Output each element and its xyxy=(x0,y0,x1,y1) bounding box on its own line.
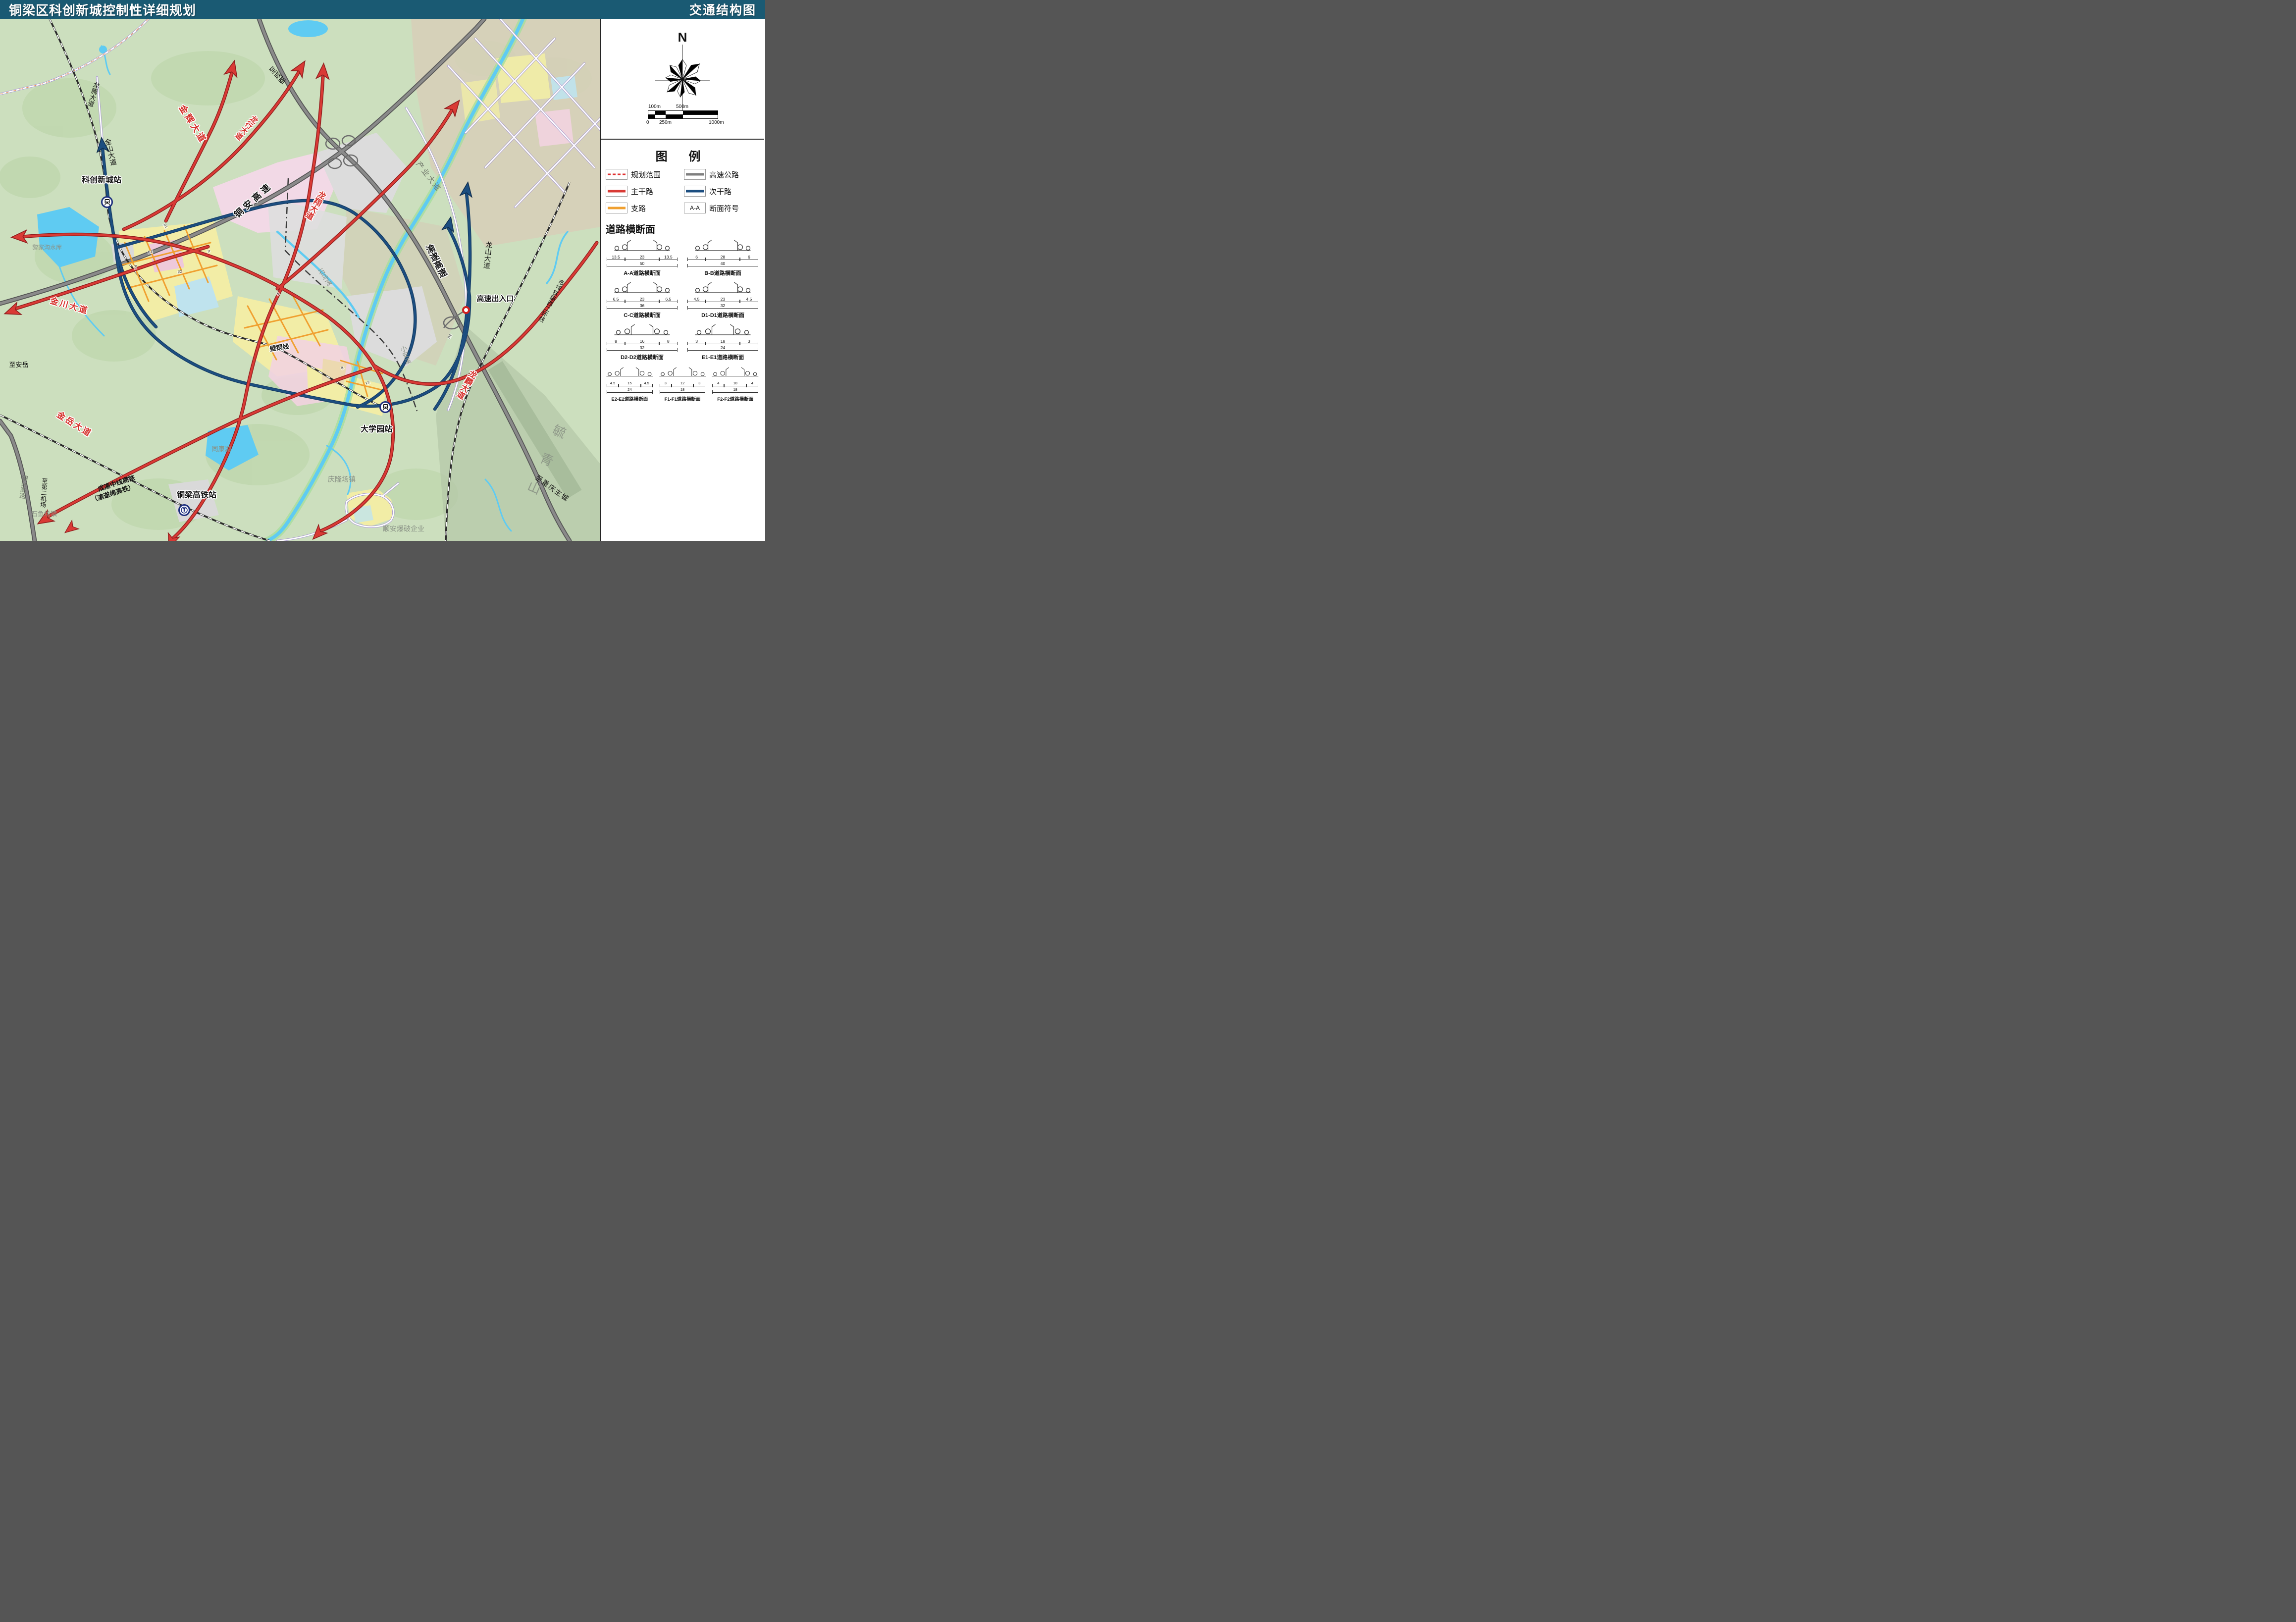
legend-item-expressway: 高速公路 xyxy=(684,169,759,180)
cross-section-sketch xyxy=(685,322,760,339)
drawing-title: 交通结构图 xyxy=(689,0,756,18)
cross-section-sketch xyxy=(710,364,760,381)
cross-section-sketch xyxy=(658,364,708,381)
arterial-road-swatch xyxy=(606,186,627,197)
legend-item-section-symbol: A-A 断面符号 xyxy=(684,203,759,213)
cross-section-f2-f2: 4 10 4 18 F2-F2道路横断面 xyxy=(710,363,760,403)
cross-section-a-a: 13.5 23 13.5 50 A-A道路横断面 xyxy=(605,237,679,278)
scale-label-100m: 100m xyxy=(648,104,661,109)
map-drawing xyxy=(0,19,601,541)
legend-item-planning-boundary: 规划范围 xyxy=(606,169,681,180)
cross-section-f1-f1: 3 12 3 18 F1-F1道路横断面 xyxy=(658,363,708,403)
title-bar: 铜梁区科创新城控制性详细规划 交通结构图 xyxy=(0,0,765,19)
section-symbol-swatch: A-A xyxy=(684,203,706,213)
metro-station-icon xyxy=(101,196,113,208)
scale-label-250m: 250m xyxy=(659,120,672,125)
page-title: 铜梁区科创新城控制性详细规划 xyxy=(9,0,196,19)
legend-title: 图 例 xyxy=(605,147,760,164)
cross-section-d1-d1: 4.5 23 4.5 32 D1-D1道路横断面 xyxy=(685,279,760,320)
compass-box: N xyxy=(601,21,764,140)
cross-section-sketch xyxy=(685,280,760,297)
scale-bar: 100m 500m 0 250m 1000m xyxy=(645,104,720,126)
cross-section-e1-e1: 3 18 3 24 E1-E1道路横断面 xyxy=(685,321,760,362)
cross-section-e2-e2: 4.5 15 4.5 24 E2-E2道路横断面 xyxy=(605,363,655,403)
cross-section-sketch xyxy=(605,364,655,381)
cross-sections-grid: 13.5 23 13.5 50 A-A道路横断面 6 28 6 40 B-B道路… xyxy=(605,237,760,362)
cross-section-sketch xyxy=(605,238,679,255)
map-canvas: 龙腾大道 金山大道 科创新城站 金辉大道 龙行大道 至成都 铜安高速 龙翔大道 … xyxy=(0,19,601,541)
page: 铜梁区科创新城控制性详细规划 交通结构图 xyxy=(0,0,765,541)
railway-station-icon xyxy=(178,504,190,516)
cross-section-c-c: 6.5 23 6.5 36 C-C道路横断面 xyxy=(605,279,679,320)
legend: 规划范围 高速公路 主干路 次干路 支路 xyxy=(605,169,760,213)
cross-section-sketch xyxy=(605,322,679,339)
planning-boundary-swatch xyxy=(606,169,627,180)
expressway-exit-marker xyxy=(462,306,470,314)
legend-item-branch: 支路 xyxy=(606,203,681,213)
cross-section-d2-d2: 8 16 8 32 D2-D2道路横断面 xyxy=(605,321,679,362)
branch-road-swatch xyxy=(606,203,627,213)
cross-sections-grid-bottom: 4.5 15 4.5 24 E2-E2道路横断面 3 12 3 18 F1-F1… xyxy=(605,363,760,403)
scale-label-1000m: 1000m xyxy=(709,120,724,125)
cross-section-sketch xyxy=(685,238,760,255)
cross-section-sketch xyxy=(605,280,679,297)
legend-item-arterial: 主干路 xyxy=(606,186,681,197)
scale-label-500m: 500m xyxy=(676,104,688,109)
legend-item-secondary: 次干路 xyxy=(684,186,759,197)
metro-station-icon xyxy=(379,401,391,413)
scale-label-0: 0 xyxy=(646,120,649,125)
expressway-swatch xyxy=(684,169,706,180)
cross-section-b-b: 6 28 6 40 B-B道路横断面 xyxy=(685,237,760,278)
side-panel: N xyxy=(601,19,764,541)
secondary-road-swatch xyxy=(684,186,706,197)
cross-sections-title: 道路横断面 xyxy=(606,221,760,236)
